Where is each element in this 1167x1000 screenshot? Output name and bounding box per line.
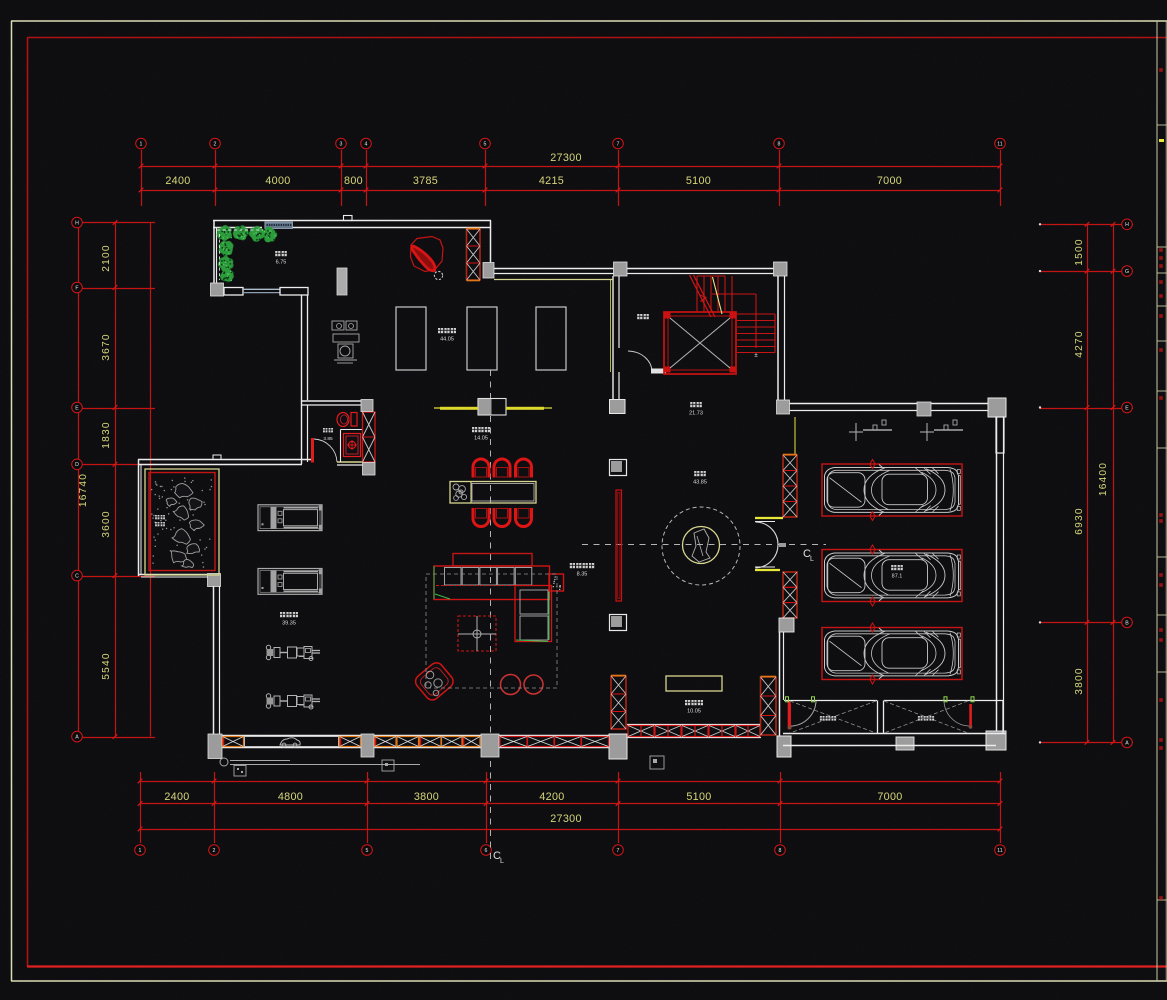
- svg-text:B: B: [1125, 620, 1129, 626]
- svg-text:2400: 2400: [165, 175, 190, 187]
- svg-text:3: 3: [340, 141, 343, 147]
- svg-text:5100: 5100: [686, 175, 711, 187]
- svg-text:2100: 2100: [101, 244, 112, 271]
- svg-text:C: C: [75, 574, 79, 580]
- svg-text:7000: 7000: [877, 175, 902, 187]
- svg-text:E: E: [1125, 405, 1129, 411]
- svg-text:3600: 3600: [101, 510, 112, 537]
- svg-text:8: 8: [778, 141, 781, 147]
- svg-text:L: L: [810, 556, 814, 563]
- svg-text:1830: 1830: [101, 421, 112, 448]
- svg-text:7: 7: [617, 141, 620, 147]
- svg-text:10.05: 10.05: [687, 709, 701, 715]
- svg-text:D: D: [75, 462, 79, 468]
- svg-text:6: 6: [485, 848, 488, 854]
- svg-text:F: F: [75, 285, 78, 291]
- svg-text:3670: 3670: [101, 333, 112, 360]
- svg-text:1: 1: [140, 141, 143, 147]
- svg-text:800: 800: [344, 175, 363, 187]
- svg-text:6.75: 6.75: [276, 260, 287, 266]
- svg-text:3785: 3785: [413, 175, 438, 187]
- svg-text:1500: 1500: [1074, 238, 1085, 265]
- svg-text:44.05: 44.05: [440, 337, 454, 343]
- svg-text:2400: 2400: [164, 791, 189, 803]
- svg-text:6930: 6930: [1074, 507, 1085, 534]
- svg-text:4800: 4800: [278, 791, 303, 803]
- svg-text:4270: 4270: [1074, 330, 1085, 357]
- svg-text:4200: 4200: [539, 791, 564, 803]
- svg-text:A: A: [75, 735, 79, 741]
- svg-text:1: 1: [139, 848, 142, 854]
- svg-text:21.73: 21.73: [689, 411, 703, 417]
- svg-text:5: 5: [484, 141, 487, 147]
- svg-text:11: 11: [997, 141, 1002, 147]
- svg-text:8.35: 8.35: [577, 572, 588, 578]
- svg-text:4: 4: [365, 141, 368, 147]
- svg-text:3800: 3800: [414, 791, 439, 803]
- svg-text:87.1: 87.1: [892, 574, 903, 580]
- svg-text:8: 8: [779, 848, 782, 854]
- svg-text:7000: 7000: [877, 791, 902, 803]
- svg-text:4215: 4215: [539, 175, 564, 187]
- svg-text:16400: 16400: [1098, 462, 1109, 496]
- svg-text:H: H: [1125, 222, 1129, 228]
- svg-text:14.05: 14.05: [474, 436, 488, 442]
- svg-text:3800: 3800: [1074, 667, 1085, 694]
- svg-text:4000: 4000: [265, 175, 290, 187]
- svg-text:H: H: [75, 220, 79, 226]
- svg-text:3.85: 3.85: [323, 436, 333, 442]
- svg-text:27300: 27300: [550, 152, 582, 164]
- svg-text:E: E: [75, 405, 79, 411]
- svg-text:16740: 16740: [78, 473, 89, 507]
- svg-text:5: 5: [366, 848, 369, 854]
- svg-text:43.85: 43.85: [693, 480, 707, 486]
- svg-text:11: 11: [997, 848, 1002, 854]
- svg-text:5100: 5100: [686, 791, 711, 803]
- svg-text:L: L: [500, 858, 504, 865]
- svg-text:7: 7: [617, 848, 620, 854]
- svg-text:G: G: [1125, 269, 1129, 275]
- svg-text:5540: 5540: [101, 652, 112, 679]
- svg-text:2: 2: [213, 848, 216, 854]
- svg-text:27300: 27300: [550, 813, 582, 825]
- svg-text:2: 2: [214, 141, 217, 147]
- svg-text:A: A: [1125, 740, 1129, 746]
- svg-text:39.35: 39.35: [282, 621, 296, 627]
